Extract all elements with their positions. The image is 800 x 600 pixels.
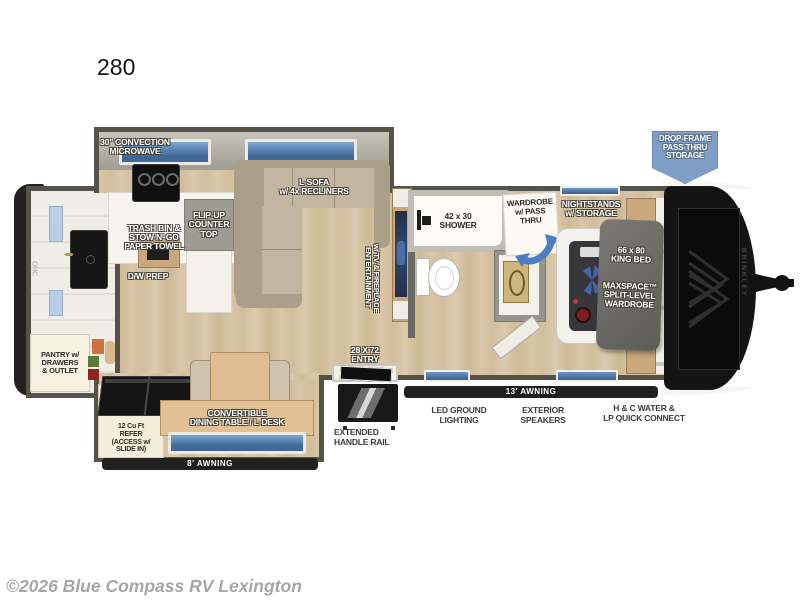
pantry: PANTRY w/ DRAWERS & OUTLET [30,334,90,392]
dw-prep-label: D/W PREP [118,272,178,281]
storage-badge: DROP-FRAME PASS-THRU STORAGE [652,131,718,184]
entry-label: 28 X 72 ENTRY [330,346,400,364]
pass-thru-arrow-icon [512,226,562,268]
fridge-top-trim [105,379,195,383]
shower-head-icon [416,208,432,232]
glass-cabinet-door [49,206,63,242]
front-cap: BRINKLEY [664,186,756,390]
faucet-icon [65,253,73,256]
overhead-cabinet-label: OHC [30,248,38,288]
shower-label: 42 x 30 SHOWER [439,212,476,231]
hitch-icon [748,262,794,304]
flip-up-counter-label: FLIP-UP COUNTER TOP [189,211,230,239]
counter-extension [186,247,232,313]
exterior-window [556,370,618,382]
shower: 42 x 30 SHOWER [408,190,508,252]
burner-icon [166,173,179,186]
cap-panel [678,208,740,370]
awning-small: 8' AWNING [102,458,318,470]
sofa-label: L-SOFA w/ 4x RECLINERS [248,178,380,196]
pantry-item [88,356,99,367]
trash-bin-label: TRASH BIN & STOW N' GO PAPER TOWEL [118,224,190,252]
bathroom-wall [408,252,415,338]
decor-item [575,307,591,323]
bed-wardrobe-label: MAXSPACE™ SPLIT-LEVEL WARDROBE [597,281,662,311]
storage-badge-label: DROP-FRAME PASS-THRU STORAGE [659,135,711,161]
sofa-armrest [236,294,302,308]
glass-cabinet-door [49,290,63,316]
pantry-item [105,341,115,364]
sofa-seats [262,206,302,294]
water-lp-label: H & C WATER & LP QUICK CONNECT [592,404,696,424]
decor-item [573,299,578,304]
step-rail-icon [344,388,392,418]
entertainment-shelf [393,189,409,207]
fireplace-glow-icon [397,241,405,265]
dinette-label: CONVERTIBLE DINING TABLE / L-DESK [190,409,284,427]
exterior-window [424,370,470,382]
entertainment-label: ENTERTAINMENT w/ TV & FIREPLACE [364,222,380,334]
entry-steps [338,384,398,422]
burner-icon [138,173,151,186]
dinette-bench: CONVERTIBLE DINING TABLE / L-DESK [160,400,314,436]
pantry-item [88,369,99,380]
refrigerator-label: 12 Cu Ft REFER (ACCESS w/ SLIDE IN) [112,423,151,454]
galley-sink [70,230,108,289]
drain-icon [86,255,95,264]
fireplace-tv [395,211,407,297]
bedroom-window [560,186,620,196]
burner-icon [152,173,165,186]
sink-basin-icon [509,270,525,296]
floorplan-page: 280 OHC PANTRY w/ DRAWERS & OUTLET FLIP-… [0,0,800,600]
king-bed-wardrobe: 66 x 80 KING BED MAXSPACE™ SPLIT-LEVEL W… [596,219,664,351]
led-lighting-label: LED GROUND LIGHTING [420,406,498,426]
brand-logo-chevron-icon [687,241,731,337]
watermark: ©2026 Blue Compass RV Lexington [6,576,302,597]
microwave-label: 30" CONVECTION MICROWAVE [92,138,178,156]
pantry-label: PANTRY w/ DRAWERS & OUTLET [41,351,79,376]
brand-name: BRINKLEY [740,248,747,332]
toilet-bowl [435,266,454,290]
king-bed-label: 66 x 80 KING BED [601,245,662,265]
nightstands-label: NIGHTSTANDS w/ STORAGE [552,200,630,218]
toilet [428,258,460,297]
handle-rail-label: EXTENDED HANDLE RAIL [334,428,410,448]
awning-large: 13' AWNING [404,386,658,398]
cooktop [132,164,180,202]
wardrobe-pass-thru-label: WARDROBE w/ PASS THRU [507,198,554,227]
speakers-label: EXTERIOR SPEAKERS [510,406,576,426]
flip-up-counter: FLIP-UP COUNTER TOP [184,199,234,251]
dinette-window [168,432,306,454]
model-number: 280 [97,54,135,81]
entertainment-shelf [393,301,409,319]
pantry-item [92,339,104,354]
entry-mat [340,366,393,383]
